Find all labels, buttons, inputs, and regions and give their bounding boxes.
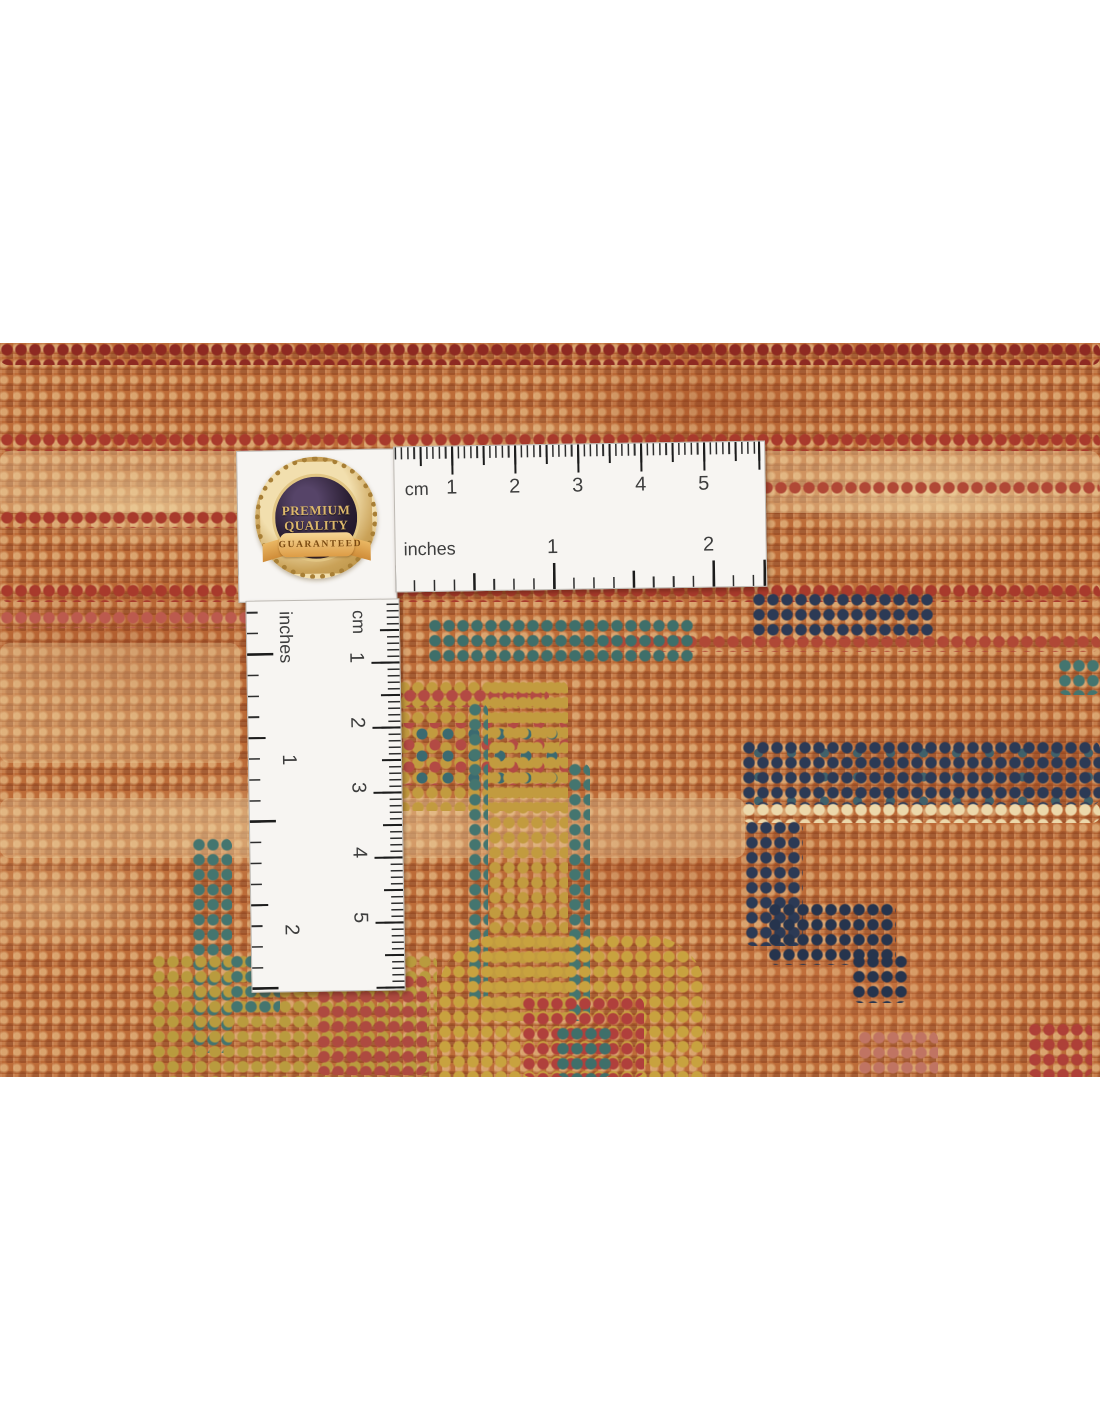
- badge-ribbon: GUARANTEED: [266, 532, 366, 560]
- ruler-v-in-2: 2: [280, 924, 303, 935]
- badge-premium-text: PREMIUM: [282, 502, 351, 518]
- badge-guaranteed-text: GUARANTEED: [278, 532, 354, 557]
- ruler-h-inch-ticks: [396, 558, 766, 592]
- ruler-h-cm-1: 1: [441, 476, 463, 499]
- ruler-v-cm-2: 2: [345, 717, 368, 728]
- ruler-h-in-2: 2: [697, 533, 719, 556]
- ruler-h-cm-4: 4: [630, 473, 652, 496]
- l-square-ruler: PREMIUM QUALITY GUARANTEED cm 1 2 3 4 5 …: [236, 435, 1100, 1059]
- ruler-h-cm-2: 2: [504, 475, 526, 498]
- ruler-horizontal-arm: cm 1 2 3 4 5 inches 1 2: [393, 441, 767, 593]
- ruler-v-inches-label: inches: [275, 611, 297, 663]
- ruler-h-cm-label: cm: [405, 479, 429, 500]
- ruler-v-cm-5: 5: [348, 912, 371, 923]
- ruler-v-cm-label: cm: [348, 610, 369, 634]
- ruler-v-in-1: 1: [277, 754, 300, 765]
- premium-quality-badge-card: PREMIUM QUALITY GUARANTEED: [236, 448, 397, 602]
- ruler-v-cm-1: 1: [344, 652, 367, 663]
- ruler-h-cm-3: 3: [567, 474, 589, 497]
- ruler-v-cm-3: 3: [346, 782, 369, 793]
- rug-light-band-left: [0, 643, 240, 763]
- rug-stripe-dark-red-top: [0, 343, 1100, 365]
- ruler-h-cm-5: 5: [692, 472, 714, 495]
- ruler-h-in-1: 1: [541, 536, 563, 559]
- ruler-vertical-arm: cm 1 2 3 4 5 inches 1 2: [245, 598, 405, 992]
- ruler-h-inches-label: inches: [404, 539, 456, 561]
- ruler-v-cm-4: 4: [347, 847, 370, 858]
- product-photo-page: PREMIUM QUALITY GUARANTEED cm 1 2 3 4 5 …: [0, 0, 1100, 1422]
- ruler-v-cm-ticks: [368, 599, 404, 989]
- badge-quality-text: QUALITY: [284, 517, 348, 533]
- premium-quality-medal: PREMIUM QUALITY GUARANTEED: [254, 456, 378, 580]
